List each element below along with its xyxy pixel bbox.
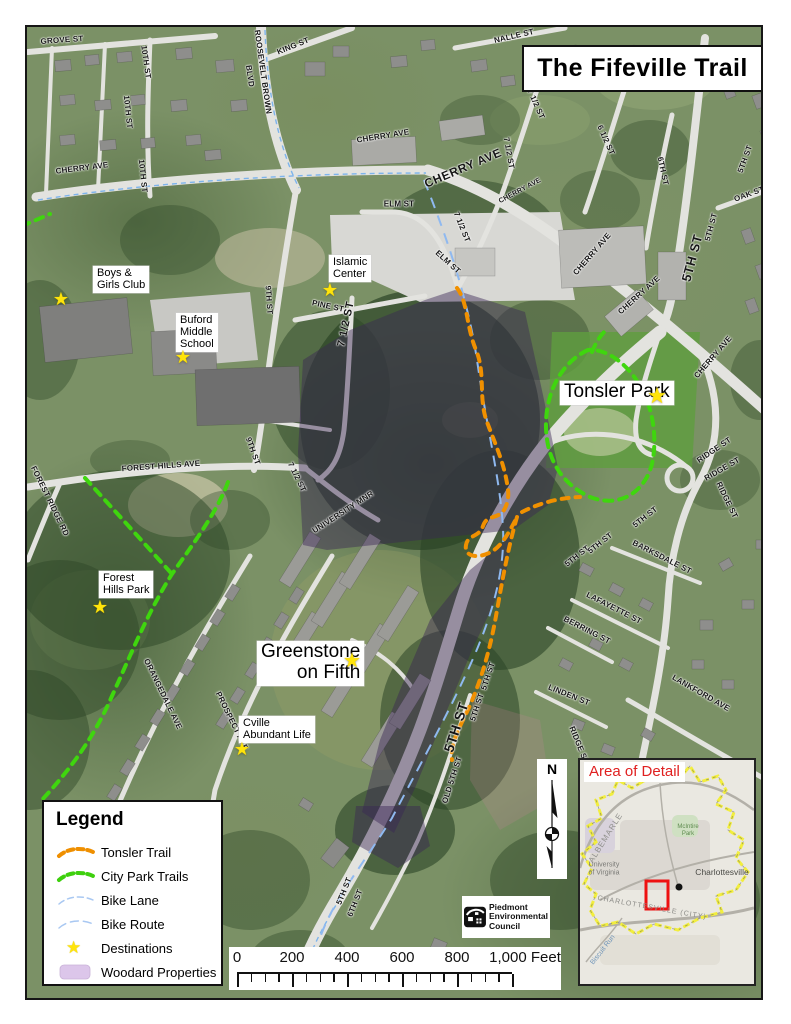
inset-label-layer: ALBEMARLEUniversityof VirginiaCharlottes…: [25, 25, 763, 1000]
inset-label: McIntire: [677, 824, 698, 830]
inset-title: Area of Detail: [584, 762, 685, 782]
inset-label: CHARLOTTESVILLE (CITY): [597, 895, 707, 921]
inset-label: Charlottesville: [695, 868, 748, 877]
inset-label: Park: [682, 831, 694, 837]
inset-label: ALBEMARLE: [587, 812, 624, 865]
inset-label: Biscuit Run: [589, 934, 616, 966]
map-frame: GROVE ST10TH ST10TH ST10TH STROOSEVELT B…: [25, 25, 763, 1000]
inset-label: University: [589, 862, 620, 869]
inset-label: of Virginia: [588, 870, 619, 877]
